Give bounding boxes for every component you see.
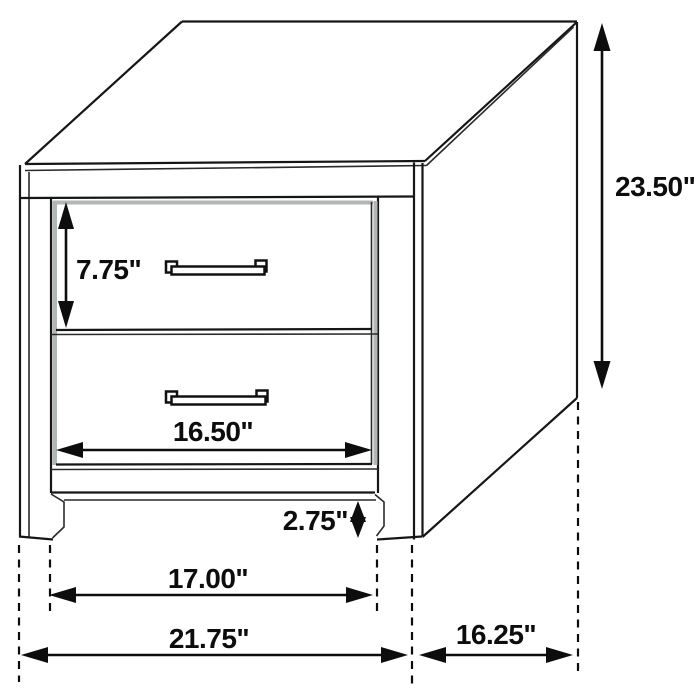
- handle-bar: [172, 397, 266, 405]
- arrowhead-right-icon: [381, 647, 408, 663]
- dimension-side-depth: 16.25": [419, 619, 573, 663]
- arrowhead-down-icon: [58, 301, 74, 328]
- drawer-handle: [166, 261, 267, 275]
- top-left-edge: [25, 22, 182, 165]
- top-rail-bottom-edge: [20, 197, 414, 199]
- top-right-edge-outer: [425, 22, 577, 161]
- arrowhead-left-icon: [49, 587, 76, 603]
- dimension-label: 16.50": [173, 416, 253, 447]
- opening-bottom-edge: [51, 469, 378, 470]
- dimension-label: 2.75": [283, 505, 348, 536]
- dimension-overall-width: 21.75": [21, 623, 408, 663]
- arrowhead-up-icon: [58, 202, 74, 229]
- top-inset-shadow: [53, 201, 373, 205]
- dimension-floor-clearance: 2.75": [283, 501, 366, 538]
- arrowhead-up-icon: [594, 23, 611, 51]
- arrowhead-right-icon: [346, 587, 373, 603]
- dimension-label: 23.50": [615, 171, 695, 202]
- arrowhead-right-icon: [546, 647, 573, 663]
- dimension-drawer-opening-height: 7.75": [58, 202, 141, 328]
- top-front-edge-thickness: [25, 166, 427, 171]
- side-panel: [423, 22, 578, 537]
- arrowhead-left-icon: [21, 647, 48, 663]
- arrowhead-left-icon: [56, 442, 83, 458]
- dimension-label: 7.75": [76, 254, 141, 285]
- drawer2-bottom-edge: [56, 464, 372, 465]
- handle-bar: [172, 267, 265, 275]
- side-bottom-edge: [423, 398, 578, 537]
- arrowhead-left-icon: [419, 647, 446, 663]
- top-front-edge: [25, 161, 425, 164]
- arrowhead-right-icon: [345, 442, 372, 458]
- drawer-divider-top-line: [56, 329, 372, 330]
- dimension-leg-inner-width: 17.00": [49, 563, 373, 603]
- diagram-canvas: 23.50" 7.75" 16.50" 2.75" 17.00" 21.75": [0, 0, 700, 700]
- right-leg-inner-profile: [375, 495, 384, 537]
- left-leg-bottom: [19, 537, 53, 540]
- left-leg-inner-profile: [51, 494, 64, 538]
- drawer-handle: [166, 391, 268, 405]
- right-inset-shadow: [374, 201, 378, 465]
- drawer-divider-bottom-line: [51, 334, 378, 335]
- arrowhead-down-icon: [350, 517, 366, 538]
- left-inset-shadow: [53, 201, 58, 465]
- arrowhead-down-icon: [594, 361, 611, 389]
- dimension-drawer-width: 16.50": [56, 416, 372, 458]
- top-surface: [25, 22, 577, 171]
- dimension-label: 21.75": [169, 623, 249, 654]
- nightstand-dimension-diagram: 23.50" 7.75" 16.50" 2.75" 17.00" 21.75": [0, 0, 700, 700]
- right-leg-bottom: [377, 537, 422, 540]
- dimension-label: 16.25": [456, 619, 536, 650]
- top-right-edge-inner: [427, 27, 574, 166]
- dimension-label: 17.00": [168, 563, 248, 594]
- dimension-overall-height: 23.50": [594, 23, 696, 389]
- front-frame: [20, 163, 414, 540]
